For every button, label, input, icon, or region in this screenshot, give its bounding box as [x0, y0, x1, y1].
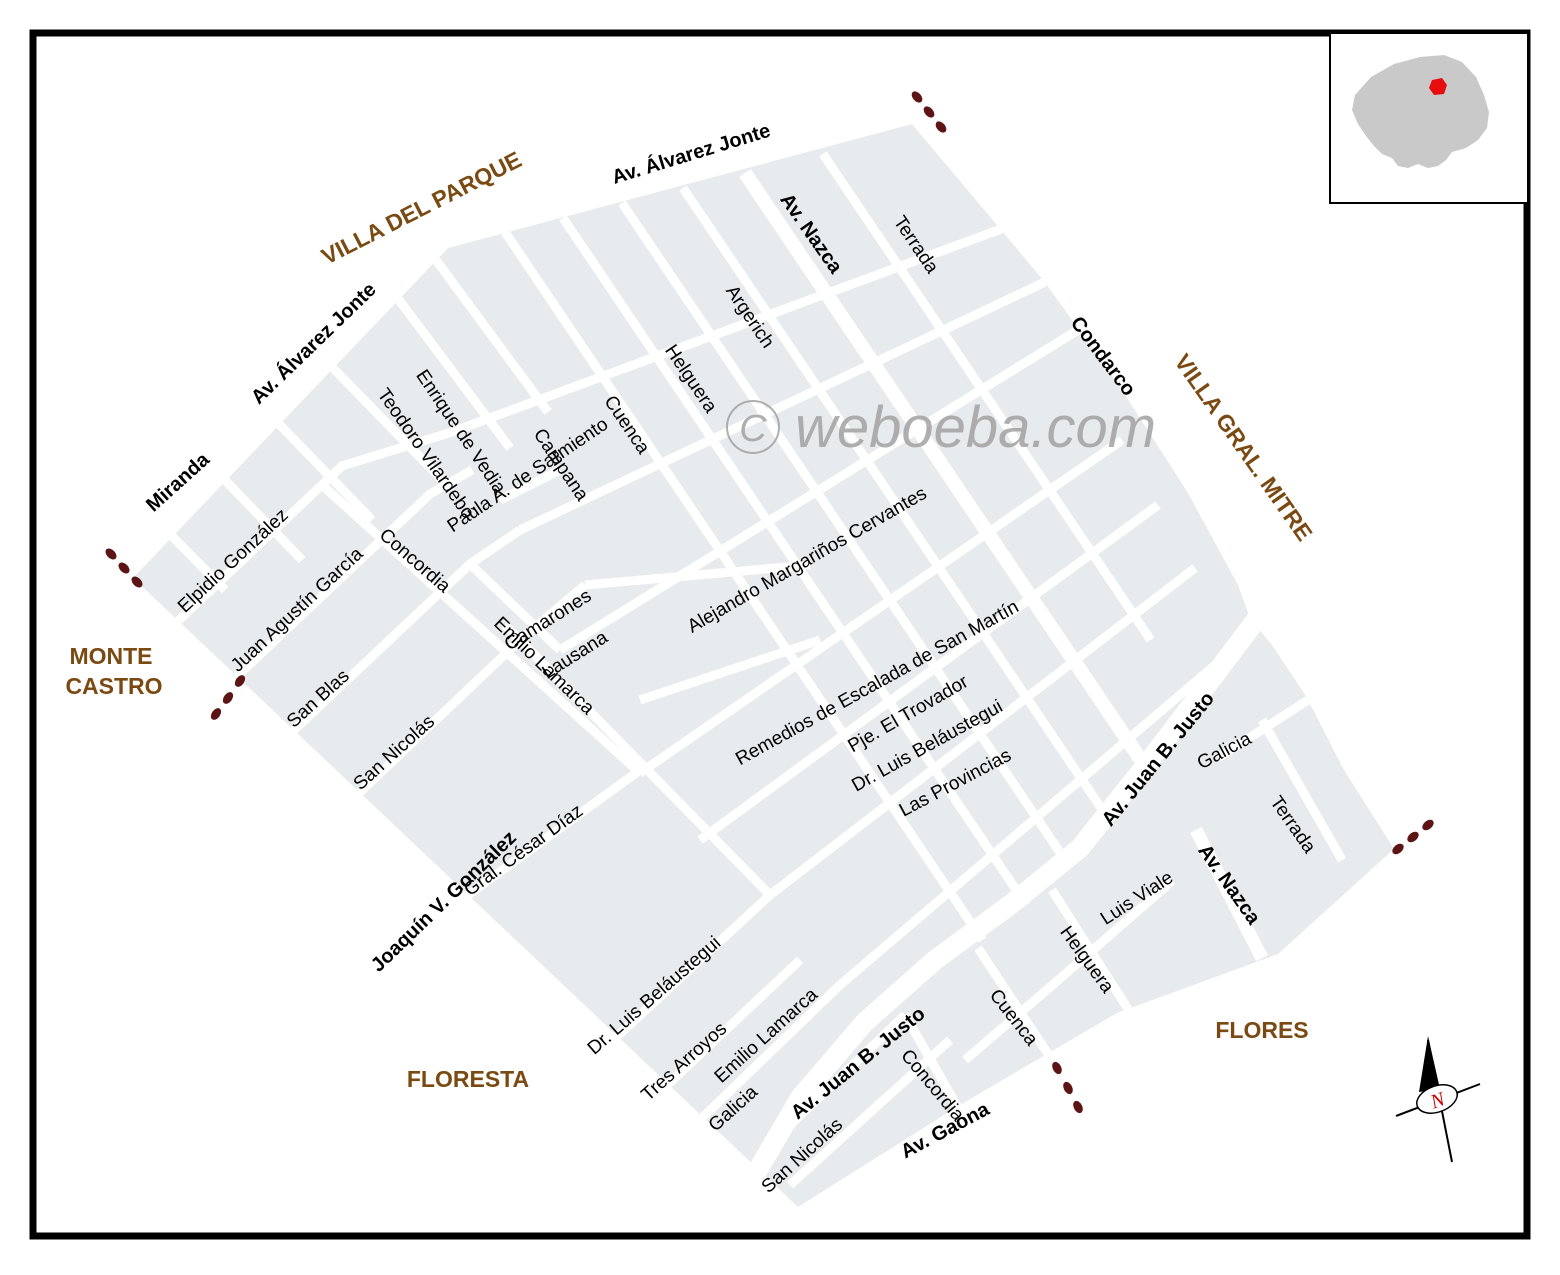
- svg-text:FLORESTA: FLORESTA: [407, 1066, 529, 1092]
- svg-text:MONTE: MONTE: [69, 643, 152, 669]
- svg-text:C: C: [739, 408, 767, 450]
- svg-text:FLORES: FLORES: [1215, 1017, 1308, 1043]
- svg-text:weboeba.com: weboeba.com: [795, 395, 1156, 460]
- svg-text:CASTRO: CASTRO: [65, 673, 162, 699]
